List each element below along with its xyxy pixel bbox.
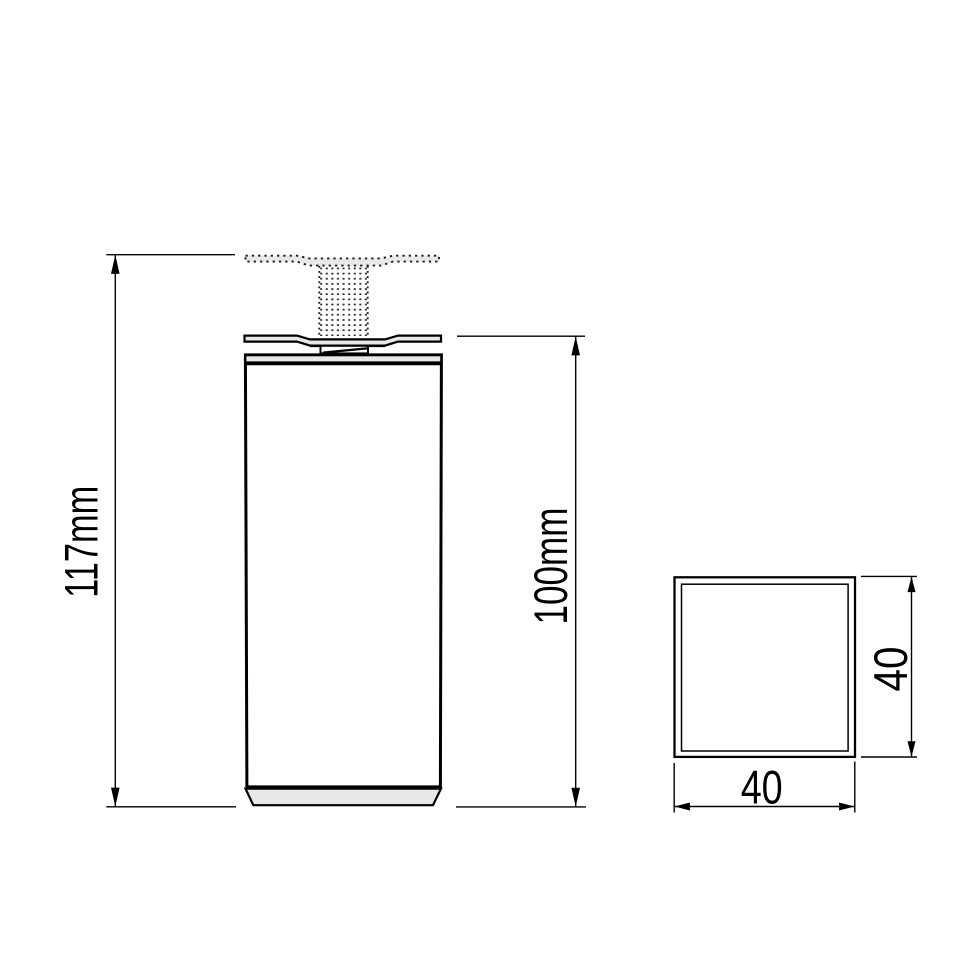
svg-text:40: 40	[741, 762, 783, 815]
svg-text:100mm: 100mm	[525, 508, 578, 625]
svg-text:40: 40	[865, 647, 918, 692]
svg-text:117mm: 117mm	[56, 486, 109, 598]
